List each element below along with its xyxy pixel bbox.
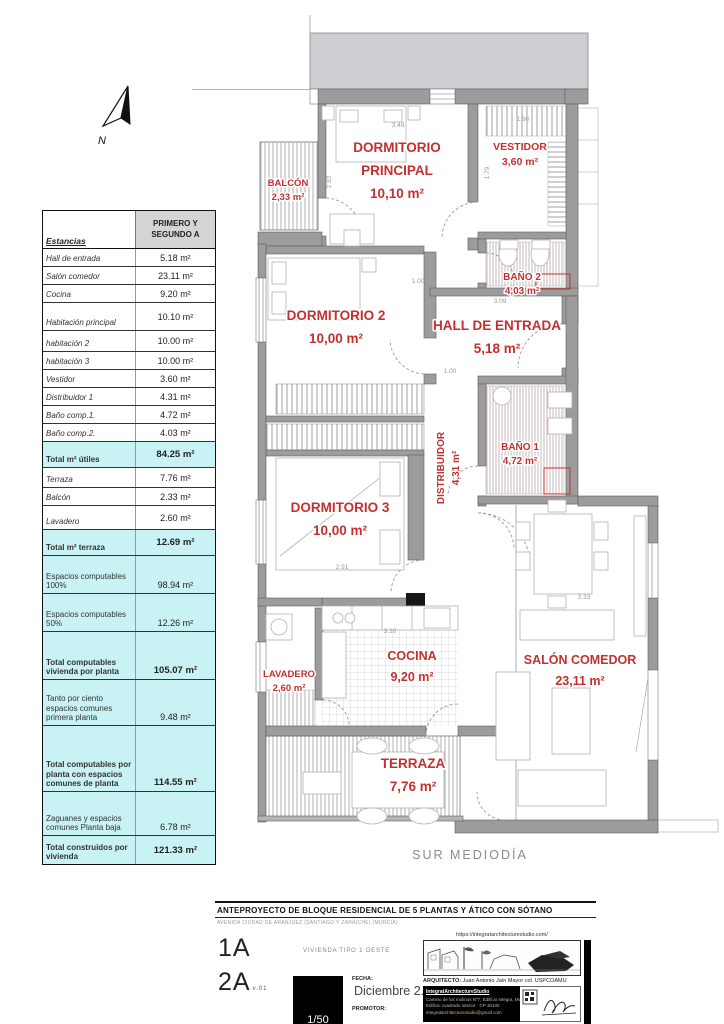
room-label: DISTRIBUIDOR — [436, 431, 447, 504]
row-value: 98.94 m² — [136, 556, 215, 593]
room-label: BAÑO 2 — [503, 270, 541, 283]
table-row: Lavadero2.60 m² — [43, 506, 215, 530]
table-row: Tanto por ciento espacios comunes primer… — [43, 680, 215, 726]
room-label: BAÑO 1 — [501, 440, 539, 453]
table-row: Cocina9.20 m² — [43, 285, 215, 303]
table-row: Terraza7.76 m² — [43, 468, 215, 488]
sheet-code-2-text: 2A — [218, 968, 251, 996]
row-label: Habitación principal — [43, 303, 136, 330]
room-label: DORMITORIO 3 — [291, 500, 390, 515]
sheet-code-2: 2Av.01 — [218, 968, 268, 997]
table-header-estancias: Estancias — [46, 236, 86, 246]
table-header-planta: PRIMERO Y SEGUNDO A — [136, 211, 215, 248]
table-row: Total computables vivienda por planta105… — [43, 632, 215, 680]
scale-value: 1/50 — [293, 1014, 343, 1024]
table-row: Espacios computables 100%98.94 m² — [43, 556, 215, 594]
dimension-label: 1.00 — [412, 278, 425, 285]
row-value: 9.48 m² — [136, 680, 215, 725]
room-label: LAVADERO — [263, 669, 315, 680]
row-label: Total computables por planta con espacio… — [43, 726, 136, 791]
table-row: Balcón2.33 m² — [43, 488, 215, 506]
row-label: habitación 3 — [43, 352, 136, 369]
qr-code-icon — [523, 990, 537, 1004]
row-value: 2.60 m² — [136, 506, 215, 529]
area-table: Estancias PRIMERO Y SEGUNDO A Hall de en… — [42, 210, 216, 865]
table-row: Hall de entrada5.18 m² — [43, 249, 215, 267]
room-label: 4,03 m² — [505, 286, 540, 297]
room-label: 4,72 m² — [503, 456, 538, 467]
room-label: PRINCIPAL — [361, 163, 433, 178]
row-value: 5.18 m² — [136, 249, 215, 266]
room-label: 2,33 m² — [272, 192, 305, 203]
room-label: 9,20 m² — [390, 670, 433, 684]
room-label: 3,60 m² — [502, 156, 539, 168]
architect-name: Juan Antonio Jaín Mayor col. USPCOAMU — [463, 978, 567, 984]
room-label: 10,10 m² — [370, 186, 425, 201]
row-label: Tanto por ciento espacios comunes primer… — [43, 680, 136, 725]
table-row: habitación 310.00 m² — [43, 352, 215, 370]
room-label: 10,00 m² — [309, 331, 364, 346]
row-value: 12.26 m² — [136, 594, 215, 631]
row-value: 105.07 m² — [136, 632, 215, 679]
row-value: 114.55 m² — [136, 726, 215, 791]
row-label: Espacios computables 100% — [43, 556, 136, 593]
row-label: Espacios computables 50% — [43, 594, 136, 631]
table-row: Total m² terraza12.69 m² — [43, 530, 215, 556]
studio-sketch-image — [423, 940, 581, 976]
row-value: 4.31 m² — [136, 388, 215, 405]
dimension-label: 1.90 — [517, 116, 530, 123]
room-label: 2,60 m² — [273, 683, 306, 694]
adjacent-building-mass — [192, 15, 588, 90]
row-label: Terraza — [43, 468, 136, 487]
scale-box: 1/50 — [293, 976, 343, 1024]
dimension-label: 3.10 — [384, 628, 397, 635]
room-label: 23,11 m² — [555, 674, 604, 688]
promotor-label: PROMOTOR: — [352, 1006, 386, 1012]
dimension-label: 1.79 — [484, 166, 491, 179]
table-row: Baño comp.1.4.72 m² — [43, 406, 215, 424]
architect-label: ARQUITECTO: — [423, 978, 461, 984]
row-value: 10.10 m² — [136, 303, 215, 330]
dimension-label: 1.00 — [444, 368, 457, 375]
row-value: 121.33 m² — [136, 836, 215, 864]
architect-panel: https://integratarchitecturestudio.com/ — [423, 932, 581, 1022]
row-label: Balcón — [43, 488, 136, 505]
row-label: Zaguanes y espacios comunes Planta baja — [43, 792, 136, 835]
title-block: ANTEPROYECTO DE BLOQUE RESIDENCIAL DE 5 … — [215, 901, 596, 1021]
table-row: Espacios computables 50%12.26 m² — [43, 594, 215, 632]
row-value: 84.25 m² — [136, 442, 215, 467]
row-value: 4.72 m² — [136, 406, 215, 423]
row-label: Distribuidor 1 — [43, 388, 136, 405]
table-row: Habitación principal10.10 m² — [43, 303, 215, 331]
row-value: 4.03 m² — [136, 424, 215, 441]
room-label: DORMITORIO — [353, 140, 441, 155]
area-table-header: Estancias PRIMERO Y SEGUNDO A — [43, 211, 215, 249]
sheet-version: v.01 — [253, 986, 268, 992]
studio-contact-box: IntegratArchitectureStudioCamino de los … — [423, 986, 520, 1022]
project-address: AVENIDA CIUDAD DE ARANJUEZ (SANTIAGO Y Z… — [215, 918, 596, 926]
table-row: Total m² útiles84.25 m² — [43, 442, 215, 468]
table-row: Total computables por planta con espacio… — [43, 726, 215, 792]
row-value: 23.11 m² — [136, 267, 215, 284]
architect-line: ARQUITECTO: Juan Antonio Jaín Mayor col.… — [423, 978, 581, 984]
row-value: 3.60 m² — [136, 370, 215, 387]
row-label: Cocina — [43, 285, 136, 302]
area-table-rows: Hall de entrada5.18 m²Salón comedor23.11… — [43, 249, 215, 864]
row-label: Lavadero — [43, 506, 136, 529]
row-label: Baño comp.1. — [43, 406, 136, 423]
row-label: Total m² terraza — [43, 530, 136, 555]
row-value: 10.00 m² — [136, 352, 215, 369]
studio-website: https://integratarchitecturestudio.com/ — [423, 932, 581, 938]
table-row: Zaguanes y espacios comunes Planta baja6… — [43, 792, 215, 836]
dimension-label: 2.92 — [326, 175, 333, 188]
title-block-end-bar — [584, 940, 591, 1024]
row-value: 2.33 m² — [136, 488, 215, 505]
table-row: habitación 210.00 m² — [43, 331, 215, 352]
row-label: habitación 2 — [43, 331, 136, 351]
dimension-label: 3.33 — [578, 594, 591, 601]
room-label: SALÓN COMEDOR — [524, 652, 637, 667]
signature-icon — [542, 1000, 576, 1015]
row-value: 6.78 m² — [136, 792, 215, 835]
room-label: DORMITORIO 2 — [287, 308, 386, 323]
row-label: Baño comp.2. — [43, 424, 136, 441]
dimension-label: 2.91 — [336, 564, 349, 571]
room-label: 10,00 m² — [313, 523, 368, 538]
table-row: Vestidor3.60 m² — [43, 370, 215, 388]
row-value: 9.20 m² — [136, 285, 215, 302]
room-label: BALCÓN — [268, 177, 309, 189]
table-row: Total construidos por vivienda121.33 m² — [43, 836, 215, 864]
studio-contact-line: integratarchitecturestudio@gmail.com — [426, 1010, 517, 1017]
fecha-label: FECHA: — [352, 976, 373, 982]
signature-box — [520, 986, 581, 1022]
dimension-label: 3.09 — [494, 298, 507, 305]
studio-contact-line: Edificio cuadrado interior · CP 30100 — [426, 1003, 517, 1010]
row-label: Salón comedor — [43, 267, 136, 284]
row-value: 12.69 m² — [136, 530, 215, 555]
studio-contact-line: IntegratArchitectureStudio — [426, 989, 517, 997]
row-value: 10.00 m² — [136, 331, 215, 351]
row-label: Total m² útiles — [43, 442, 136, 467]
drawing-name: VIVIENDA TIPO 1 OESTE — [303, 948, 390, 954]
studio-contact-line: Camino de los molinos Nº7, Edificio Inte… — [426, 997, 517, 1004]
table-row: Distribuidor 14.31 m² — [43, 388, 215, 406]
row-label: Total computables vivienda por planta — [43, 632, 136, 679]
table-row: Salón comedor23.11 m² — [43, 267, 215, 285]
row-value: 7.76 m² — [136, 468, 215, 487]
room-label: 5,18 m² — [474, 341, 521, 356]
plan-sheet: N — [0, 0, 724, 1024]
room-label: HALL DE ENTRADA — [433, 318, 561, 333]
room-label: COCINA — [387, 649, 436, 663]
table-row: Baño comp.2.4.03 m² — [43, 424, 215, 442]
room-label: 7,76 m² — [390, 779, 437, 794]
room-label: 4,31 m² — [451, 450, 462, 485]
room-label: TERRAZA — [381, 756, 446, 771]
room-label: VESTIDOR — [493, 141, 547, 153]
sheet-code-1: 1A — [218, 934, 251, 963]
row-label: Total construidos por vivienda — [43, 836, 136, 864]
dimension-label: 3.48 — [392, 122, 405, 129]
project-title: ANTEPROYECTO DE BLOQUE RESIDENCIAL DE 5 … — [215, 903, 596, 918]
row-label: Hall de entrada — [43, 249, 136, 266]
south-orientation-label: SUR MEDIODÍA — [380, 848, 560, 862]
row-label: Vestidor — [43, 370, 136, 387]
